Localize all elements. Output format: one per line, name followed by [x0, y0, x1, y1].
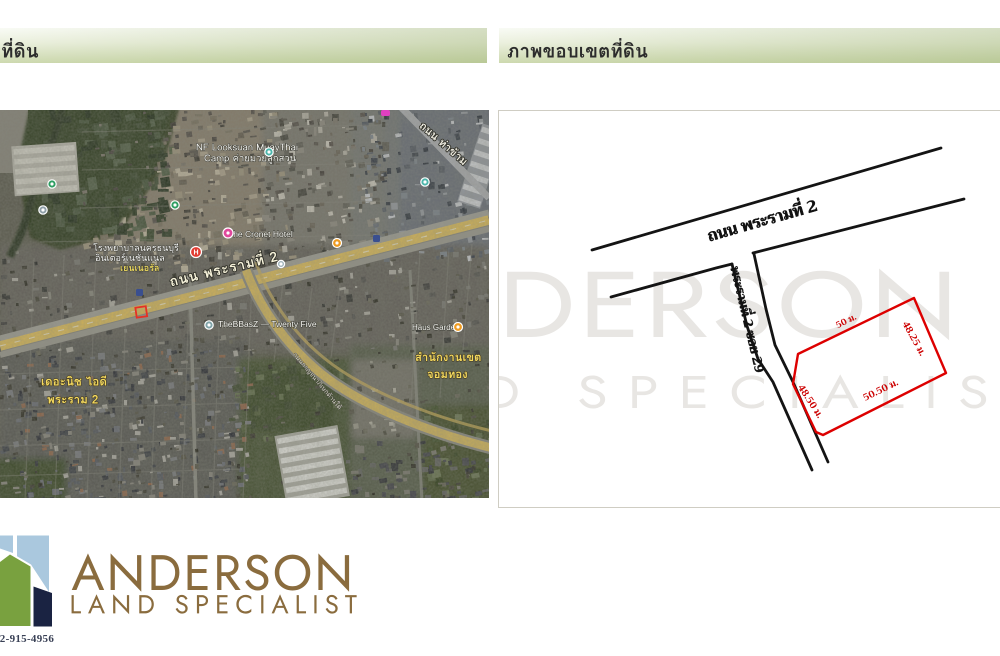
svg-text:H: H	[193, 250, 198, 257]
svg-text:The Cronet Hotel: The Cronet Hotel	[228, 229, 293, 239]
svg-text:TheBBasZ — Twenty Five: TheBBasZ — Twenty Five	[218, 319, 317, 329]
svg-text:Haus Garden: Haus Garden	[412, 323, 460, 332]
